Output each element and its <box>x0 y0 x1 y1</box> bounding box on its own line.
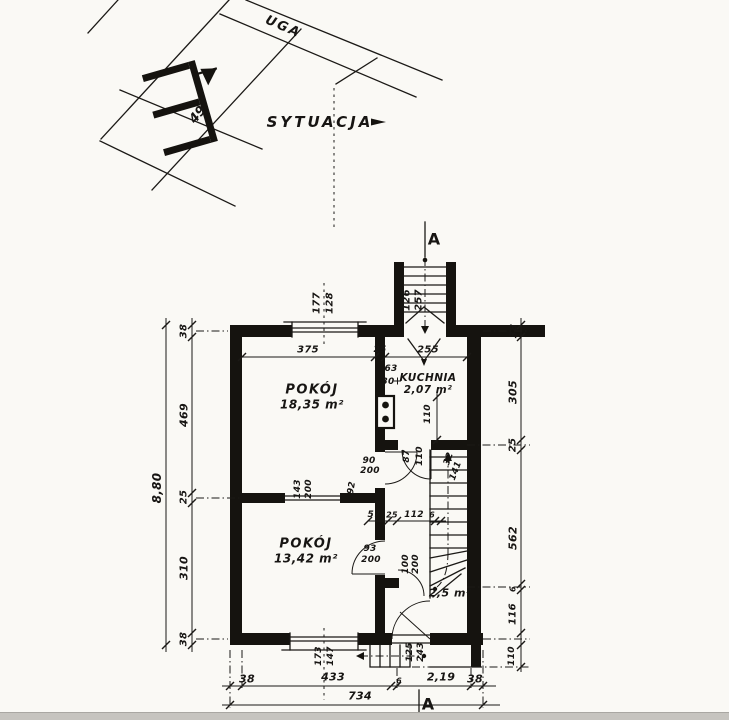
dim-label: 57 <box>367 510 380 520</box>
street-name-label: UGA <box>263 13 303 41</box>
dim-label: 38 <box>179 632 190 647</box>
dim-label: 30 <box>381 377 394 387</box>
dim-label: 310 <box>178 556 191 580</box>
dim-label: 200 <box>361 555 381 565</box>
dim-label: 38 <box>179 324 190 339</box>
dim-label: 112 <box>404 510 424 520</box>
dim-label: 6 <box>509 586 518 592</box>
dim-label: 110 <box>415 446 425 466</box>
room-label-pokoj-1: POKÓJ 18,35 m² <box>280 383 344 412</box>
scan-edge <box>0 712 729 720</box>
dim-label: 110 <box>423 404 433 424</box>
room-label-pokoj-2: POKÓJ 13,42 m² <box>274 537 338 566</box>
dim-label: 92 <box>346 481 358 496</box>
dim-label: 243 <box>416 642 426 662</box>
dim-label: 375 <box>297 345 319 356</box>
dim-label: 433 <box>321 671 345 684</box>
dim-label: 90 <box>362 456 375 466</box>
dim-label: 125 <box>405 642 415 662</box>
dim-label: 6 <box>396 677 402 686</box>
site-plan-title: SYTUACJA <box>267 113 374 131</box>
room-label-kuchnia: KUCHNIA 2,07 m² <box>399 372 456 396</box>
dim-label: 87 <box>402 449 412 462</box>
dim-label: 6 <box>429 511 435 520</box>
dim-label: 200 <box>304 479 314 499</box>
dim-label: 173 <box>314 646 324 666</box>
dim-label: 8,80 <box>150 473 164 504</box>
dim-label: 305 <box>507 380 520 404</box>
dim-label: 38 <box>467 673 483 686</box>
section-marker-top: A <box>428 230 440 249</box>
dim-label: 200 <box>411 554 421 574</box>
dim-label: 126 <box>402 289 413 311</box>
dim-label: 63 <box>384 364 397 374</box>
dim-label: 110 <box>507 646 517 666</box>
dim-label: 2,19 <box>427 671 455 684</box>
dim-label: 100 <box>401 554 411 574</box>
dim-label: 93 <box>363 544 376 554</box>
dim-label: 177 <box>312 292 323 314</box>
floor-plan-scan: UGA SYTUACJA 49 A A POKÓJ 18,35 m² KUCHN… <box>0 0 729 720</box>
dim-label: 469 <box>178 403 191 427</box>
dim-label: 255 <box>417 345 439 356</box>
dim-label: 25 <box>508 438 519 453</box>
dim-label: 200 <box>360 466 380 476</box>
section-marker-bottom: A <box>422 695 434 714</box>
dim-label: 128 <box>325 292 336 314</box>
dim-label: 562 <box>507 526 520 550</box>
dim-label: 25 <box>373 345 386 355</box>
dim-label: 38 <box>509 324 520 339</box>
dim-label: 38 <box>239 673 255 686</box>
dim-label: 116 <box>508 603 519 625</box>
dim-label: 257 <box>414 289 425 311</box>
building-number-label: 49 <box>186 103 209 127</box>
dim-label: 734 <box>348 690 372 703</box>
room-label-hall: 2,5 m² <box>429 587 472 600</box>
dim-label: 143 <box>293 479 303 499</box>
dim-label: 147 <box>326 646 336 666</box>
dim-label: 25 <box>179 490 190 505</box>
label-layer: UGA SYTUACJA 49 A A POKÓJ 18,35 m² KUCHN… <box>0 0 729 720</box>
dim-label: 25 <box>386 511 398 520</box>
